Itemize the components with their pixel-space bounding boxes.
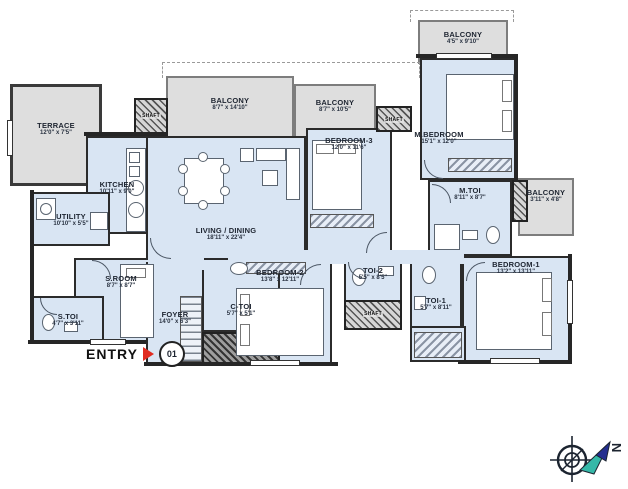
pillow xyxy=(240,294,250,316)
window xyxy=(490,358,540,364)
kitchen-sink xyxy=(128,180,144,196)
wardrobe xyxy=(310,214,374,228)
bed xyxy=(476,272,552,350)
pillow xyxy=(240,324,250,346)
wall xyxy=(514,56,518,182)
north-compass-icon: N xyxy=(548,430,624,489)
shaft: SHAFT xyxy=(134,98,168,136)
pillow xyxy=(126,268,146,278)
window xyxy=(436,53,492,59)
open-terrace-dashed-outline xyxy=(410,10,514,22)
wardrobe xyxy=(448,158,512,172)
wash-basin xyxy=(64,322,78,332)
toilet-wc xyxy=(486,226,500,244)
hall-connector xyxy=(148,258,204,270)
dining-table xyxy=(184,158,224,204)
entry-number-badge: 01 xyxy=(159,341,185,367)
kitchen-sink xyxy=(128,202,144,218)
pillow xyxy=(542,278,552,302)
shower-tray xyxy=(434,224,460,250)
entry-label: ENTRY xyxy=(86,346,138,362)
room-toilet-1: TOI-15'7" x 8'11" xyxy=(410,258,462,328)
dining-chair xyxy=(220,164,230,174)
entry-marker: ENTRY 01 xyxy=(86,341,185,367)
stove-burner xyxy=(129,152,140,163)
dining-chair xyxy=(198,200,208,210)
washing-machine-drum xyxy=(40,203,52,215)
sofa xyxy=(256,148,286,161)
side-table xyxy=(262,170,278,186)
wall xyxy=(30,190,34,344)
side-table xyxy=(240,148,254,162)
wardrobe xyxy=(414,332,462,358)
shaft: SHAFT xyxy=(344,300,402,330)
wash-basin xyxy=(378,266,394,276)
north-label: N xyxy=(609,443,624,452)
dining-chair xyxy=(220,186,230,196)
window xyxy=(7,120,13,156)
sofa xyxy=(286,148,300,200)
shaft xyxy=(512,180,528,222)
shaft: SHAFT xyxy=(376,106,412,132)
toilet-wc xyxy=(42,314,55,331)
pillow xyxy=(542,312,552,336)
pillow xyxy=(502,80,512,102)
dining-chair xyxy=(198,152,208,162)
pillow xyxy=(316,144,334,154)
dining-chair xyxy=(178,164,188,174)
dining-chair xyxy=(178,186,188,196)
window xyxy=(250,360,300,366)
pillow xyxy=(338,144,356,154)
window xyxy=(567,280,573,324)
stove-burner xyxy=(129,166,140,177)
refrigerator xyxy=(90,212,108,230)
wash-basin xyxy=(414,296,426,310)
entry-arrow-icon xyxy=(143,347,154,361)
toilet-wc xyxy=(422,266,436,284)
pillow xyxy=(502,110,512,132)
toilet-wc xyxy=(230,262,248,275)
wardrobe xyxy=(246,262,306,274)
floor-plan: TERRACE12'0" x 7'5" BALCONY8'7" x 14'10"… xyxy=(0,0,628,489)
wash-basin xyxy=(462,230,478,240)
wall xyxy=(84,132,168,136)
open-terrace-dashed-outline xyxy=(162,62,420,78)
room-balcony-main: BALCONY8'7" x 14'10" xyxy=(166,76,294,140)
